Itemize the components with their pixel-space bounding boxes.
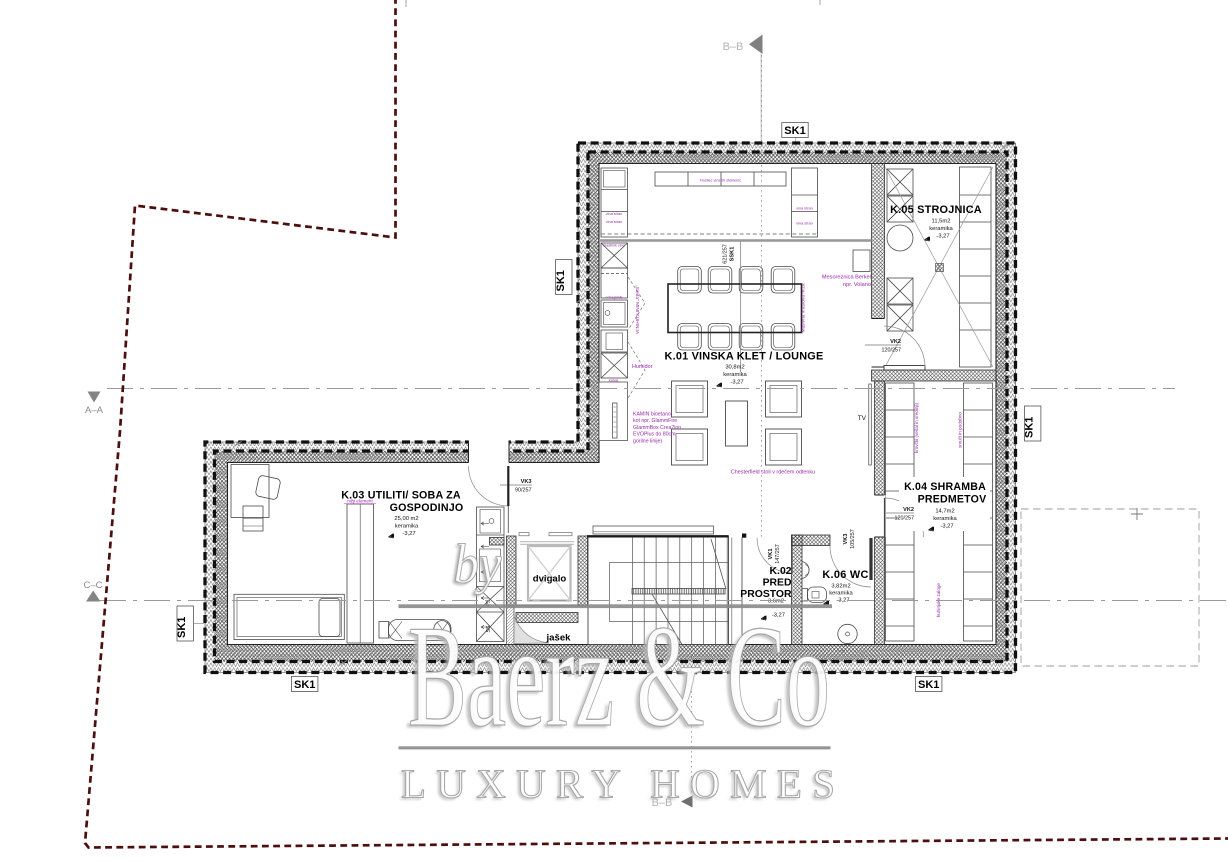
svg-text:SK1: SK1 xyxy=(918,679,939,691)
svg-text:TV: TV xyxy=(858,415,867,422)
svg-text:kuhal.: kuhal. xyxy=(609,379,619,383)
svg-text:VK2: VK2 xyxy=(890,339,901,345)
svg-text:25,00 m2: 25,00 m2 xyxy=(394,516,418,522)
svg-text:VK3: VK3 xyxy=(521,479,532,485)
svg-text:vina stran: vina stran xyxy=(796,222,812,226)
svg-text:by: by xyxy=(454,534,502,596)
svg-text:11,5m2: 11,5m2 xyxy=(932,219,951,225)
svg-text:voda: voda xyxy=(856,650,866,655)
svg-text:keramika: keramika xyxy=(929,226,953,232)
svg-text:Humidor: Humidor xyxy=(632,364,653,370)
svg-text:nižji element: nižji element xyxy=(347,499,373,504)
svg-text:621/257: 621/257 xyxy=(723,244,729,264)
svg-text:K.04 SHRAMBA: K.04 SHRAMBA xyxy=(904,481,986,493)
svg-text:npr. Volano: npr. Volano xyxy=(843,282,871,288)
svg-text:odcejalnik: odcejalnik xyxy=(606,296,623,300)
svg-text:KAMIN bioetanol: KAMIN bioetanol xyxy=(633,412,672,418)
svg-text:GOSPODINJO: GOSPODINJO xyxy=(390,502,464,514)
svg-text:hladilnik vino: hladilnik vino xyxy=(603,244,625,248)
svg-text:VK1: VK1 xyxy=(768,549,774,560)
svg-text:147/257: 147/257 xyxy=(775,544,781,564)
svg-text:krovčki (vešal in sredinji): krovčki (vešal in sredinji) xyxy=(914,403,919,454)
svg-text:120/257: 120/257 xyxy=(882,348,902,354)
svg-text:A–A: A–A xyxy=(85,405,104,416)
svg-text:30,8m2: 30,8m2 xyxy=(725,365,744,371)
svg-text:SK1: SK1 xyxy=(1024,417,1036,438)
svg-text:„Sanfa“ MINI KUHINJA: „Sanfa“ MINI KUHINJA xyxy=(634,285,640,335)
svg-text:vina stran: vina stran xyxy=(606,220,622,224)
svg-text:kot npr. GlammFire: kot npr. GlammFire xyxy=(633,418,677,424)
svg-text:-3,27: -3,27 xyxy=(940,524,953,530)
svg-text:K.05 STROJNICA: K.05 STROJNICA xyxy=(890,204,982,216)
svg-text:90/257: 90/257 xyxy=(515,488,532,494)
svg-text:SK1: SK1 xyxy=(555,270,567,291)
svg-text:keramika: keramika xyxy=(933,516,957,522)
svg-text:gorilne linije): gorilne linije) xyxy=(633,438,662,444)
svg-text:keramika: keramika xyxy=(723,372,747,378)
svg-text:EVOPlus do 80cm: EVOPlus do 80cm xyxy=(633,432,675,438)
svg-text:kuhinjske zaloge: kuhinjske zaloge xyxy=(936,583,941,617)
svg-text:SK1: SK1 xyxy=(176,617,188,638)
svg-text:Chesterfield stoli v rdečem od: Chesterfield stoli v rdečem odtenku xyxy=(731,470,815,476)
svg-text:SSK1: SSK1 xyxy=(730,247,736,262)
svg-text:3,82m2: 3,82m2 xyxy=(831,584,850,590)
svg-text:Mesoreznica Berkel: Mesoreznica Berkel xyxy=(822,275,871,281)
svg-text:-3,27: -3,27 xyxy=(402,531,415,537)
svg-text:B–B: B–B xyxy=(723,41,744,53)
svg-text:K.02: K.02 xyxy=(770,566,792,577)
svg-text:smuči in podobno: smuči in podobno xyxy=(958,412,963,448)
svg-text:-3,27: -3,27 xyxy=(730,380,743,386)
svg-text:105/257: 105/257 xyxy=(850,529,856,549)
svg-text:-3,27: -3,27 xyxy=(936,234,949,240)
svg-text:SK1: SK1 xyxy=(784,125,805,137)
svg-text:PREDMETOV: PREDMETOV xyxy=(918,494,987,506)
svg-text:keramika: keramika xyxy=(395,524,419,530)
svg-text:Nosilec vinskih steklenic: Nosilec vinskih steklenic xyxy=(700,179,741,183)
svg-text:14,7m2: 14,7m2 xyxy=(935,509,954,515)
svg-text:Masivna hrastova miza: Masivna hrastova miza xyxy=(801,283,807,332)
svg-text:VK2: VK2 xyxy=(903,507,914,513)
svg-text:Baerz & Co: Baerz & Co xyxy=(408,595,830,757)
svg-text:vina stran: vina stran xyxy=(606,212,622,216)
svg-text:keramika: keramika xyxy=(829,591,853,597)
svg-text:C–C: C–C xyxy=(83,580,102,591)
svg-text:SK1: SK1 xyxy=(294,679,315,691)
svg-text:GlammBox Crea7ion: GlammBox Crea7ion xyxy=(633,425,681,431)
svg-text:vina stran: vina stran xyxy=(796,207,812,211)
svg-text:VK3: VK3 xyxy=(843,534,849,545)
svg-text:PRED: PRED xyxy=(763,578,792,589)
svg-text:120/257: 120/257 xyxy=(895,516,915,522)
svg-text:dvigalo: dvigalo xyxy=(533,574,567,585)
svg-text:K.01 VINSKA KLET / LOUNGE: K.01 VINSKA KLET / LOUNGE xyxy=(665,351,824,363)
svg-text:K.06 WC: K.06 WC xyxy=(822,569,868,581)
